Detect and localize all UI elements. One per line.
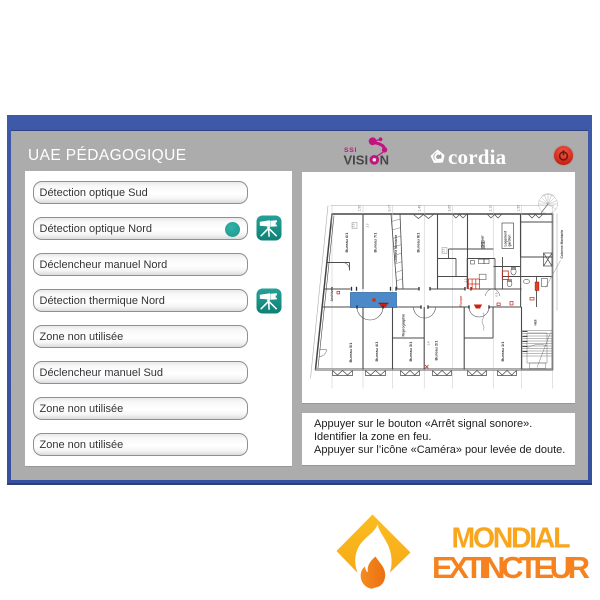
svg-text:N: N xyxy=(380,152,389,167)
svg-text:Séjour: Séjour xyxy=(479,234,484,247)
svg-text:Bureau 1/1: Bureau 1/1 xyxy=(500,340,505,361)
svg-text:VISI: VISI xyxy=(344,152,369,167)
svg-text:Rampe: Rampe xyxy=(459,295,463,306)
svg-text:1.43: 1.43 xyxy=(417,204,421,211)
svg-text:3.65: 3.65 xyxy=(447,204,451,211)
svg-text:1.4: 1.4 xyxy=(426,341,430,345)
svg-text:EXTINCTEUR: EXTINCTEUR xyxy=(432,550,590,585)
svg-text:Bureau 3/1: Bureau 3/1 xyxy=(408,340,413,361)
svg-text:3.07: 3.07 xyxy=(387,204,391,211)
svg-text:Archives: Archives xyxy=(330,286,334,301)
svg-text:Colonne Montante: Colonne Montante xyxy=(394,234,398,262)
svg-text:Bureau 4/1: Bureau 4/1 xyxy=(374,340,379,361)
svg-text:Bureau 6/1: Bureau 6/1 xyxy=(344,231,349,252)
svg-text:Reprographie: Reprographie xyxy=(401,313,405,336)
svg-text:3.5: 3.5 xyxy=(365,223,369,227)
svg-text:0.9: 0.9 xyxy=(494,292,498,296)
svg-text:Bureau 2/1: Bureau 2/1 xyxy=(433,339,438,360)
svg-text:gardien: gardien xyxy=(507,234,511,246)
svg-text:1.50: 1.50 xyxy=(357,204,361,211)
svg-text:Hall: Hall xyxy=(533,319,537,325)
svg-text:1.2: 1.2 xyxy=(463,278,467,282)
svg-text:2.10: 2.10 xyxy=(488,204,492,211)
svg-text:Colonne Montante: Colonne Montante xyxy=(560,229,564,258)
svg-text:1.95: 1.95 xyxy=(516,204,520,211)
svg-text:cordia: cordia xyxy=(448,148,507,168)
svg-text:Bureau 8/1: Bureau 8/1 xyxy=(415,231,420,252)
svg-text:Bureau 5/1: Bureau 5/1 xyxy=(348,341,353,362)
svg-text:Bureau 7/1: Bureau 7/1 xyxy=(372,231,377,252)
